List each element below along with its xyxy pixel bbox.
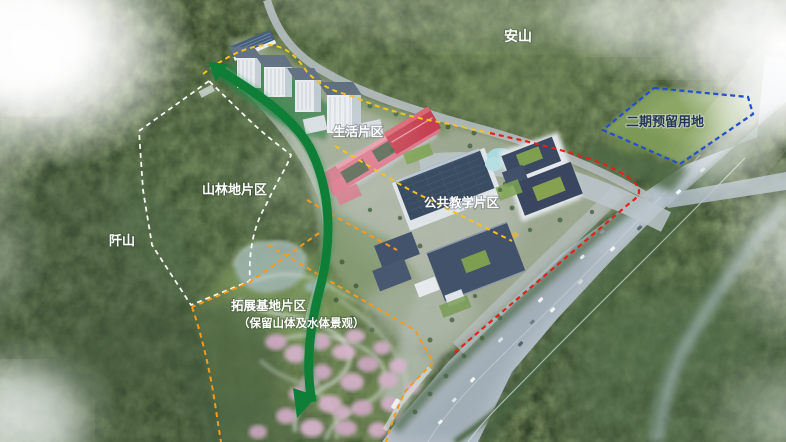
svg-text:（保留山体及水体景观）: （保留山体及水体景观） <box>238 316 365 330</box>
svg-text:二期预留用地: 二期预留用地 <box>626 114 704 129</box>
svg-text:公共教学片区: 公共教学片区 <box>424 195 500 210</box>
svg-text:安山: 安山 <box>504 28 532 44</box>
svg-text:山林地片区: 山林地片区 <box>202 182 267 197</box>
svg-text:拓展基地片区: 拓展基地片区 <box>231 298 307 313</box>
svg-text:生活片区: 生活片区 <box>333 124 384 139</box>
svg-text:阡山: 阡山 <box>109 233 135 248</box>
